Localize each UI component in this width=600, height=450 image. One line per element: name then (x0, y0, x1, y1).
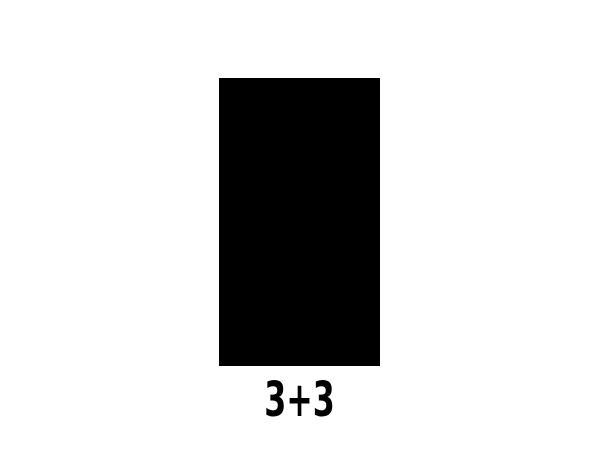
caption-label: 3+3 (219, 374, 380, 426)
black-rectangle (219, 78, 380, 366)
canvas: 3+3 (0, 0, 600, 450)
caption-text: 3+3 (264, 374, 335, 426)
